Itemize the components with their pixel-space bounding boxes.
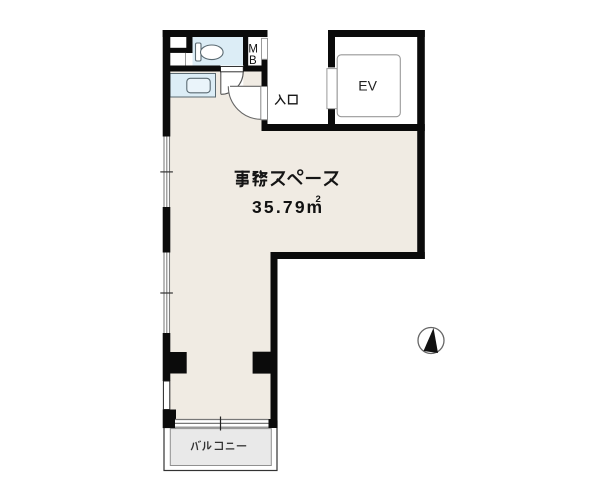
- svg-text:B: B: [249, 55, 257, 67]
- svg-text:M: M: [248, 44, 258, 56]
- svg-text:EV: EV: [358, 78, 377, 94]
- svg-text:2: 2: [316, 194, 321, 205]
- svg-text:35.79: 35.79: [252, 197, 307, 217]
